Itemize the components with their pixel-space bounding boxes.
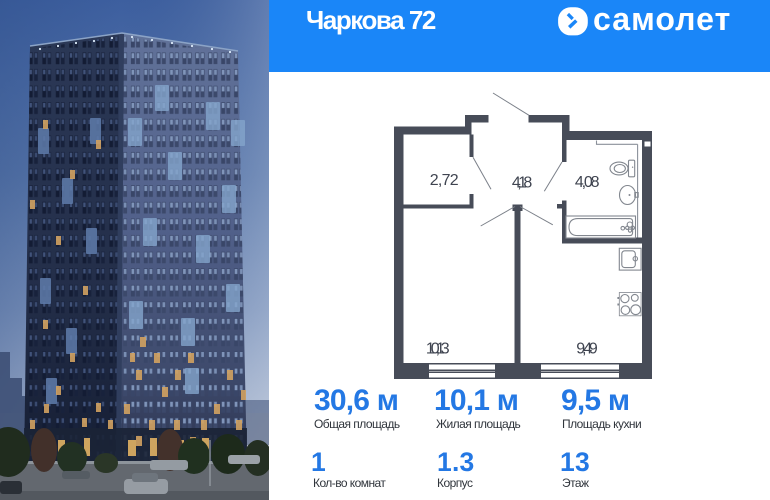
- svg-text:9,49: 9,49: [576, 341, 598, 358]
- svg-text:4,18: 4,18: [512, 175, 532, 192]
- svg-text:10,13: 10,13: [426, 340, 450, 357]
- svg-text:4,08: 4,08: [575, 174, 600, 191]
- svg-text:2,72: 2,72: [430, 172, 459, 189]
